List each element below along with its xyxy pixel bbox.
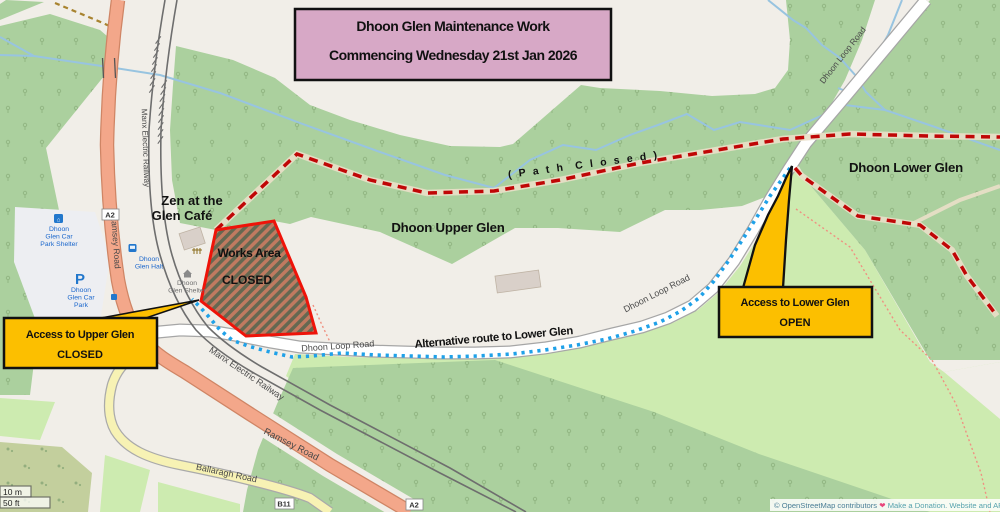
svg-text:A2: A2 — [105, 211, 115, 220]
svg-text:Dhoon Lower Glen: Dhoon Lower Glen — [849, 160, 963, 175]
svg-text:B11: B11 — [277, 500, 290, 509]
svg-text:Dhoon Upper Glen: Dhoon Upper Glen — [391, 220, 504, 235]
svg-text:Glen Café: Glen Café — [152, 208, 213, 223]
svg-text:Dhoon: Dhoon — [139, 256, 159, 263]
svg-text:A2: A2 — [409, 501, 419, 510]
svg-text:Glen Halt: Glen Halt — [135, 264, 163, 271]
svg-text:Works Area: Works Area — [217, 246, 281, 260]
svg-text:Dhoon: Dhoon — [71, 287, 91, 294]
svg-text:CLOSED: CLOSED — [222, 273, 272, 287]
svg-text:50 ft: 50 ft — [3, 498, 20, 508]
svg-text:⌂: ⌂ — [57, 218, 61, 224]
svg-text:Park Shelter: Park Shelter — [40, 241, 78, 248]
svg-text:Dhoon: Dhoon — [177, 280, 197, 287]
svg-text:Access to Lower Glen: Access to Lower Glen — [741, 297, 851, 309]
svg-text:Park: Park — [74, 302, 89, 309]
svg-text:Zen at the: Zen at the — [161, 193, 222, 208]
svg-text:P: P — [75, 271, 85, 288]
svg-text:Glen Shelter: Glen Shelter — [168, 288, 207, 295]
svg-text:© OpenStreetMap contributors ❤: © OpenStreetMap contributors ❤ Make a Do… — [774, 501, 1000, 510]
svg-text:OPEN: OPEN — [779, 317, 810, 329]
svg-text:Access to Upper Glen: Access to Upper Glen — [26, 329, 135, 341]
svg-text:Glen Car: Glen Car — [67, 295, 95, 302]
svg-text:Dhoon: Dhoon — [49, 226, 69, 233]
svg-text:Glen Car: Glen Car — [45, 234, 73, 241]
svg-text:CLOSED: CLOSED — [57, 349, 103, 361]
svg-text:Commencing Wednesday 21st Jan: Commencing Wednesday 21st Jan 2026 — [329, 47, 578, 63]
svg-text:10 m: 10 m — [3, 487, 22, 497]
svg-text:Dhoon Glen Maintenance Work: Dhoon Glen Maintenance Work — [356, 18, 550, 34]
